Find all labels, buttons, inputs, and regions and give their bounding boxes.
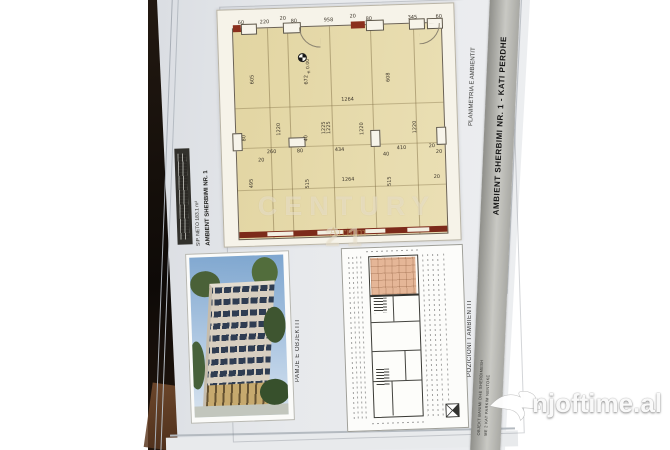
agency-sub-watermark: Atrium <box>300 224 395 240</box>
dim-label: 1264 <box>341 98 354 103</box>
wall <box>391 380 393 415</box>
tree <box>259 378 288 405</box>
stairs <box>376 369 390 386</box>
stairs <box>374 298 388 313</box>
dim-label: 20 <box>280 17 287 22</box>
paving <box>194 403 288 417</box>
wall <box>372 349 420 352</box>
dim-label: 515 <box>306 179 311 189</box>
dim-label: 1264 <box>342 178 355 183</box>
dim-label: 410 <box>397 146 407 151</box>
dim-label: 80 <box>297 149 304 154</box>
building-photo <box>185 250 295 424</box>
badge-text-lines <box>177 153 189 239</box>
dim-label: 20 <box>434 175 441 180</box>
dim-label: 608 <box>386 72 391 82</box>
grid-line <box>235 102 443 110</box>
dim-label: 40 <box>304 135 309 142</box>
dim-label: 20 <box>429 144 436 149</box>
keyplan-sheet <box>341 244 469 432</box>
highlighted-unit <box>370 257 416 296</box>
dim-label: 1220 <box>413 121 418 134</box>
wall <box>370 294 418 298</box>
level-label: ±0.00 <box>307 59 312 74</box>
dim-label: 260 <box>267 150 277 155</box>
column-box <box>366 20 384 32</box>
dim-label: 40 <box>383 152 390 157</box>
dim-label: 605 <box>250 75 255 85</box>
column-box <box>370 130 381 147</box>
red-wall-segment <box>233 25 241 32</box>
tree <box>263 306 286 343</box>
site-watermark: njoftime.al <box>488 380 670 436</box>
address-badge <box>174 148 192 244</box>
banner-title: AMBIENT SHERBIMI NR. 1 - KATI PERDHE <box>491 36 508 215</box>
keyplan-caption: POZICIONI I AMBIENTIT <box>467 285 473 377</box>
dim-label: 1225 <box>327 121 332 134</box>
dim-label: 80 <box>242 135 247 142</box>
dimension-ticks <box>372 421 426 424</box>
dim-label: 672 <box>304 75 309 85</box>
building-render <box>189 254 289 417</box>
column-box <box>241 24 257 35</box>
dim-label: 1220 <box>360 122 365 135</box>
dim-label: 220 <box>260 20 270 25</box>
wall <box>392 294 394 321</box>
door-swing-arc <box>299 27 321 49</box>
wall <box>371 320 419 323</box>
dim-label: 434 <box>335 148 345 153</box>
red-wall-segment <box>351 21 365 28</box>
dim-label: 20 <box>258 158 265 163</box>
dim-label: 20 <box>350 14 357 19</box>
dim-label: 958 <box>324 18 334 23</box>
unit-area-label: SIP. NETO 183.1 m² <box>192 146 201 246</box>
photo-caption: PAMJE E OBJEKTIT <box>295 298 301 382</box>
dim-label: 20 <box>436 150 443 155</box>
agency-watermark: CENTURY 21 <box>233 191 461 253</box>
dimension-ticks <box>443 254 450 418</box>
north-arrow-icon <box>445 403 459 417</box>
dim-label: 515 <box>388 176 393 186</box>
building-outline <box>368 254 424 418</box>
unit-name-label: AMBIENT SHERBIMI NR. 1 <box>202 146 211 246</box>
column-box <box>436 127 447 145</box>
listing-photo: 60 220 20 80 958 20 80 345 60 <box>0 0 670 450</box>
wall <box>404 350 406 380</box>
site-watermark-text: njoftime.al <box>532 388 662 419</box>
dimension-ticks <box>437 254 444 418</box>
dim-label: 495 <box>250 179 255 189</box>
dim-label: 1220 <box>277 123 282 136</box>
door-swing-arc <box>419 23 441 45</box>
unit-label-block: SIP. NETO 183.1 m² AMBIENT SHERBIMI NR. … <box>174 145 222 248</box>
